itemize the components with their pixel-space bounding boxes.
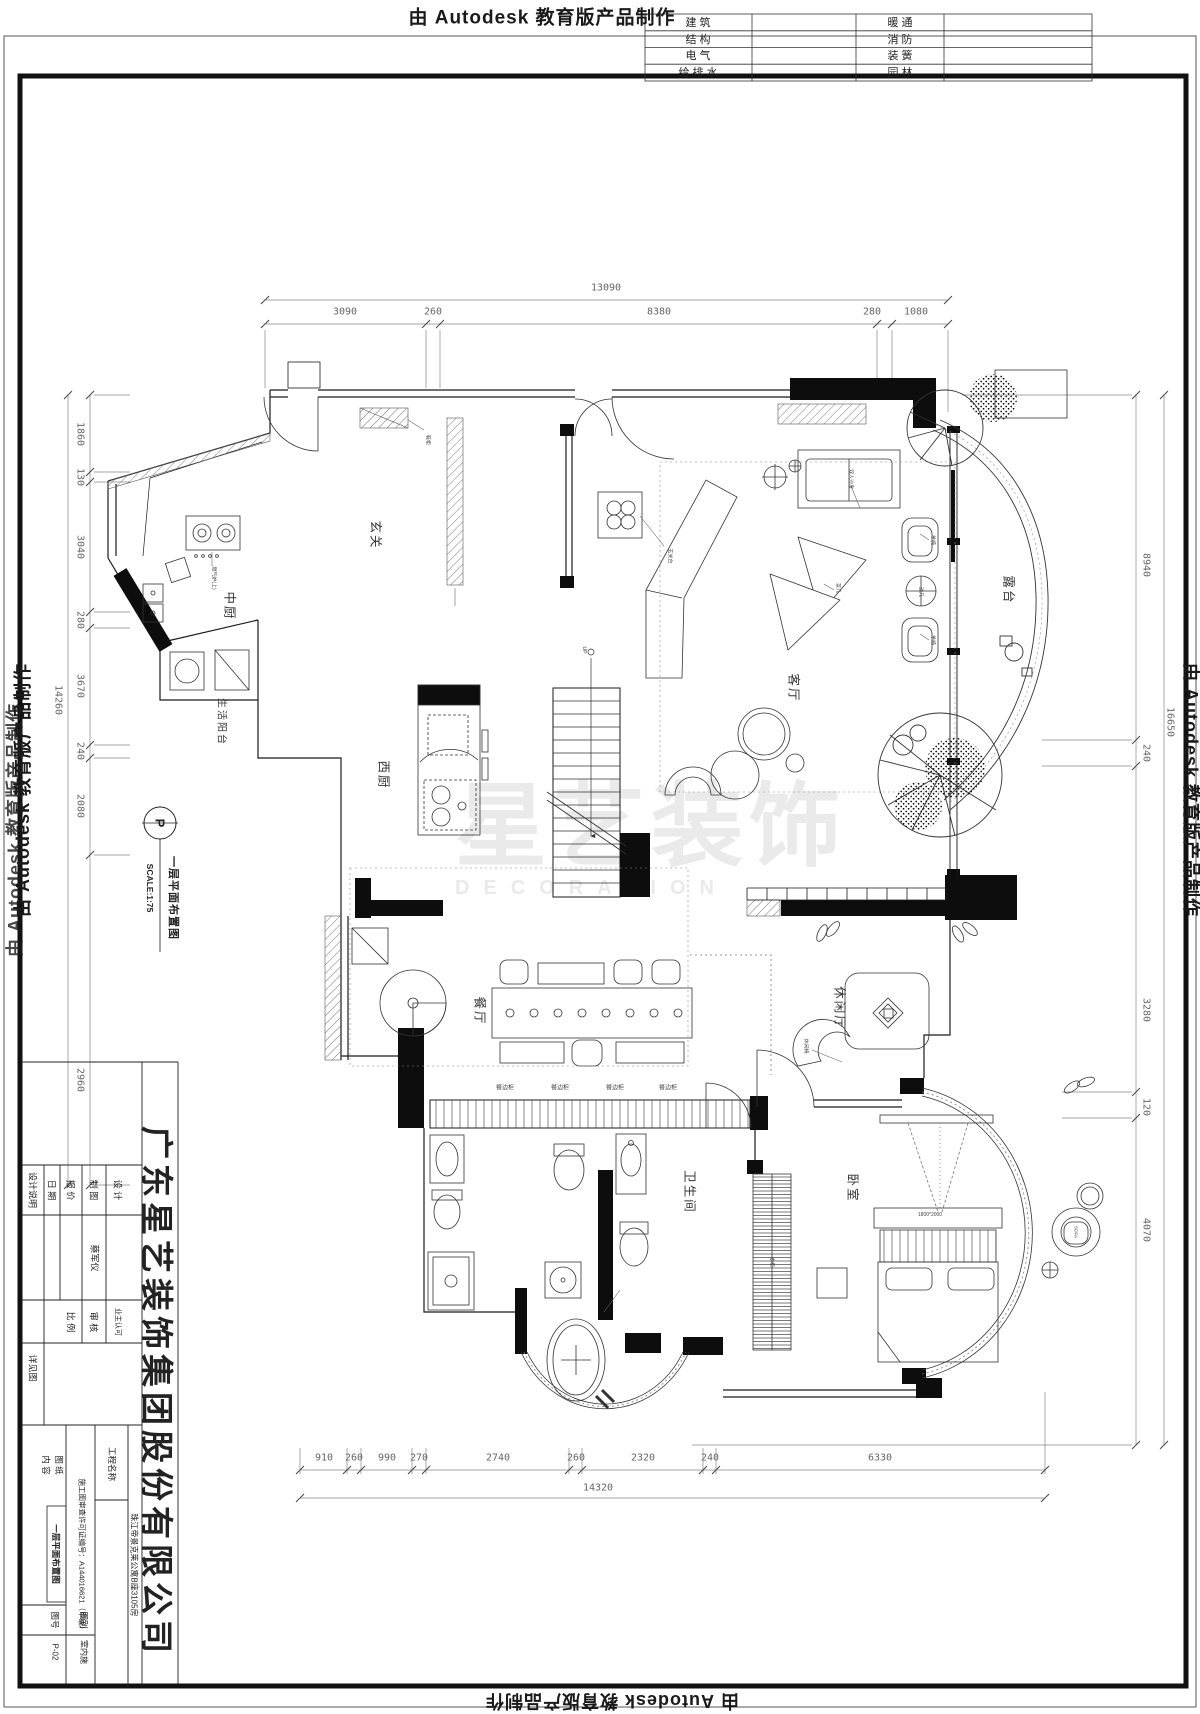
disc-fire: 消 防 [887,31,912,47]
stamp-bottom: 由 Autodesk 教育版产品制作 [485,1689,739,1714]
stamp-top: 由 Autodesk 教育版产品制作 [408,3,675,30]
dim-left-7: 2080 [75,794,86,818]
tb-review-label: 审 核 [88,1312,101,1333]
ann-sideboard-4: 餐边柜 [659,1083,677,1092]
disc-deco: 装 簧 [887,47,912,63]
disc-garden: 园 林 [887,64,912,80]
walls [108,362,950,1397]
tb-project-label: 工程名称 [106,1447,118,1481]
dim-bot-3: 990 [378,1453,396,1464]
room-western-kitchen: 西厨 [376,760,395,789]
tb-design-label: 设 计 [112,1180,125,1201]
ann-bed-size: 1800*2000 [918,1212,942,1218]
dim-bot-9: 6330 [868,1453,892,1464]
tb-company: 广东星艺装饰集团股份有限公司 [135,1126,183,1658]
tb-content-label-1: 图 纸 [53,1455,65,1474]
dim-left-2: 130 [75,468,86,486]
disc-hvac: 暖 通 [887,14,912,30]
room-terrace: 露台 [1001,575,1020,604]
disc-plumb: 给 排 水 [678,64,717,80]
disc-arch: 建 筑 [685,14,710,30]
dim-right-total: 16650 [1165,707,1176,737]
dim-right-3: 3280 [1141,998,1152,1022]
plan-note-title: 一层平面布置图 [166,856,182,940]
dim-left-8: 2960 [75,1068,86,1092]
stamp-left-ghost: 由 Autodesk 教育版产品制作 [1,703,27,957]
tb-content-label-2: 内 容 [40,1455,52,1474]
tb-content-value: 一层平面布置图 [50,1524,62,1584]
disc-elec: 电 气 [685,47,710,63]
ann-console: 玄关台 [667,548,674,563]
room-service-balcony: 生活阳台 [216,698,231,746]
tb-permit: 施工图审查许可证编号：A144016621（甲级） [77,1478,88,1633]
dim-bot-2: 260 [345,1453,363,1464]
tb-quote-label: 报 价 [65,1180,78,1201]
ann-stove: 燃气炉(上) [211,566,218,589]
ann-lounge-chair: 休闲椅 [803,1038,810,1053]
ann-side-table: 边几 [918,587,925,597]
tb-draft-label: 制 图 [88,1180,101,1201]
tb-owner-label: 业主认可 [113,1308,123,1336]
dim-top-3: 8380 [647,307,671,318]
dim-top-2: 260 [424,307,442,318]
ann-chair-1: 单椅 [930,535,937,545]
dim-left-5: 3670 [75,674,86,698]
ann-double-sofa: 双人沙发 [848,469,855,489]
ann-chair-2: 单椅 [930,635,937,645]
tb-scale-value: 详见图 [27,1354,40,1381]
ann-tea-table: 茶几 [835,583,842,593]
dim-bot-4: 270 [410,1453,428,1464]
tb-scale-label: 比 例 [65,1312,78,1333]
terrace-landscape [878,370,1067,837]
drawing-sheet: 星艺装饰 DECORATION [0,0,1200,1714]
plan-note-scale: SCALE:1:75 [145,864,155,913]
ann-sofa-tag: SOFA [1074,1226,1079,1238]
ann-wardrobe: 衣柜 [769,1257,776,1267]
dim-top-4: 280 [863,307,881,318]
room-bedroom: 卧室 [845,1173,864,1202]
disc-struct: 结 构 [685,31,710,47]
dim-left-6: 240 [75,742,86,760]
stamp-right: 由 Autodesk 教育版产品制作 [1179,663,1200,917]
dim-right-5: 4070 [1141,1218,1152,1242]
entry-console [598,492,642,538]
tb-note: 设计说明 [27,1172,40,1208]
dim-bot-total: 14320 [583,1483,613,1494]
dim-right-1: 8940 [1141,553,1152,577]
room-entry: 玄关 [368,520,387,549]
room-bathroom: 卫生间 [682,1170,701,1214]
tb-category-value: 室内施 [79,1640,90,1664]
dim-left-1: 1860 [75,422,86,446]
railing [747,888,947,900]
room-dining: 餐厅 [472,996,491,1025]
dim-left-total: 14260 [53,685,64,715]
bath-fixtures [428,1134,689,1409]
tb-drafter: 蔡军仪 [89,1244,102,1271]
ann-sideboard-3: 餐边柜 [606,1083,624,1092]
room-leisure: 休闲厅 [832,986,851,1030]
dim-right-4: 120 [1141,1098,1152,1116]
room-chinese-kitchen: 中厨 [222,591,241,620]
ann-sideboard-2: 餐边柜 [551,1083,569,1092]
plan-note-letter: P [153,819,168,828]
dim-top-5: 1080 [904,307,928,318]
dim-bot-7: 2320 [631,1453,655,1464]
dim-bot-8: 240 [701,1453,719,1464]
dim-top-total: 13090 [591,283,621,294]
ann-up: UP [581,647,587,654]
living-furniture [646,450,955,799]
tb-number-label: 图号 [49,1611,61,1628]
dim-top-1: 3090 [333,307,357,318]
dim-left-4: 280 [75,611,86,629]
dim-right-2: 240 [1141,744,1152,762]
dim-bot-1: 910 [315,1453,333,1464]
staircase [547,649,626,883]
tb-date-label: 日 期 [46,1180,59,1201]
bedroom-furniture [753,1075,1103,1378]
island-counter [418,685,488,835]
tb-number-value: P-02 [51,1644,60,1661]
ann-sideboard-1: 餐边柜 [496,1083,514,1092]
tb-category-label: 图别 [78,1611,90,1628]
dim-bot-5: 2740 [486,1453,510,1464]
ann-shoe-cabinet: 鞋柜 [425,435,432,445]
dim-left-3: 3040 [75,535,86,559]
dim-bot-6: 260 [567,1453,585,1464]
room-living: 客厅 [786,673,805,702]
